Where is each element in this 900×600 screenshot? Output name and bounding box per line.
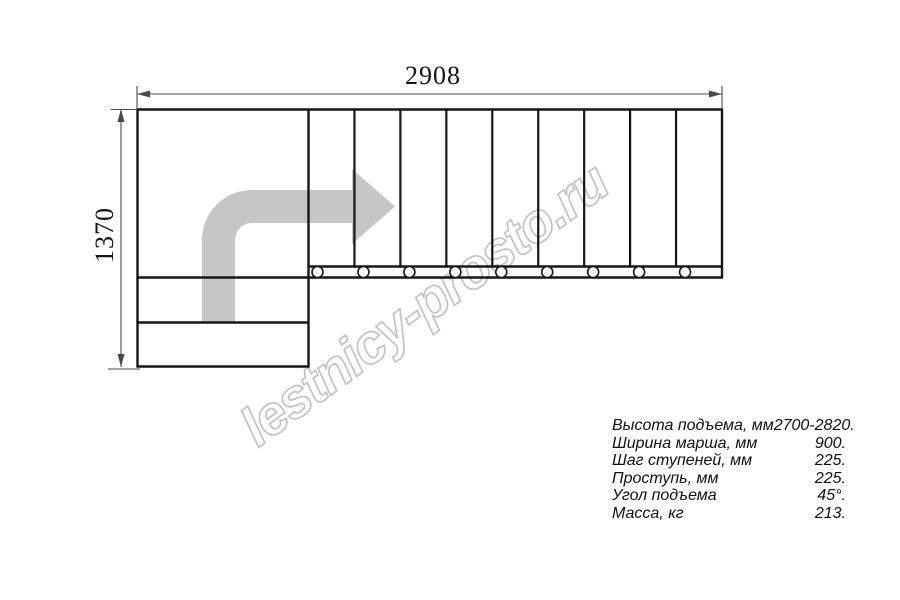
fastener-circle (312, 267, 323, 278)
spec-label: Шаг ступеней, мм (612, 452, 752, 470)
fastener-circle (680, 267, 691, 278)
width-dimension-label: 2908 (381, 61, 485, 91)
fastener-circle (542, 267, 553, 278)
fastener-circle (588, 267, 599, 278)
spec-value: 225. (815, 452, 846, 470)
spec-label: Высота подъема, мм (612, 417, 774, 435)
spec-value: 225. (815, 470, 846, 488)
spec-label: Угол подъема (612, 487, 717, 505)
spec-row-tread: Проступь, мм 225. (612, 470, 846, 488)
fastener-circles (312, 267, 691, 278)
spec-value: 900. (815, 435, 846, 453)
spec-row-mass: Масса, кг 213. (612, 505, 846, 523)
spec-row-rise-height: Высота подъема, мм 2700-2820. (612, 417, 846, 435)
spec-value: 213. (815, 505, 846, 523)
arrowhead-down (118, 354, 125, 367)
arrowhead-up (118, 109, 125, 122)
spec-table: Высота подъема, мм 2700-2820. Ширина мар… (612, 417, 846, 523)
fastener-circle (496, 267, 507, 278)
fastener-circle (358, 267, 369, 278)
fastener-circle (634, 267, 645, 278)
spec-row-rise-angle: Угол подъема 45°. (612, 487, 846, 505)
spec-row-flight-width: Ширина марша, мм 900. (612, 435, 846, 453)
fastener-circle (404, 267, 415, 278)
spec-row-step-pitch: Шаг ступеней, мм 225. (612, 452, 846, 470)
direction-arrow (202, 169, 395, 323)
arrowhead-right (709, 91, 722, 98)
spec-value: 45°. (817, 487, 846, 505)
fastener-circle (450, 267, 461, 278)
height-dimension-label: 1370 (90, 207, 120, 263)
spec-label: Масса, кг (612, 505, 684, 523)
spec-value: 2700-2820. (774, 417, 855, 435)
spec-label: Ширина марша, мм (612, 435, 757, 453)
spec-label: Проступь, мм (612, 470, 718, 488)
arrowhead-left (137, 91, 150, 98)
